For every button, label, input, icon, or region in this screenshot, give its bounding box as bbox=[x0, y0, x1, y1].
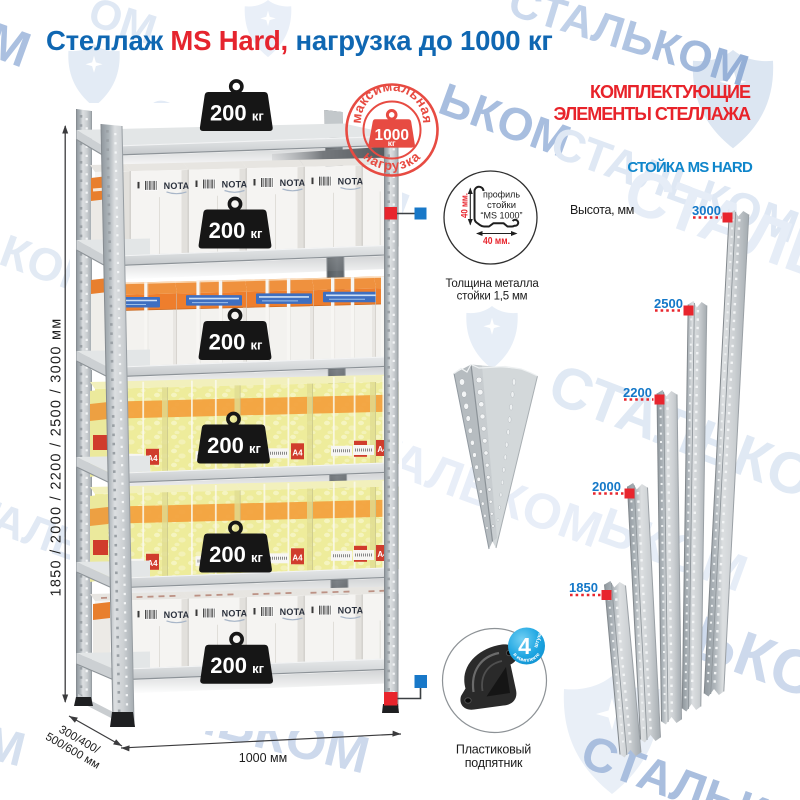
svg-text:A4: A4 bbox=[292, 448, 303, 457]
svg-text:“MS 1000”: “MS 1000” bbox=[481, 211, 523, 222]
svg-text:4: 4 bbox=[518, 633, 531, 659]
svg-text:кг: кг bbox=[251, 226, 264, 241]
svg-text:200: 200 bbox=[210, 653, 247, 678]
svg-text:2000: 2000 bbox=[592, 479, 621, 494]
svg-text:кг: кг bbox=[251, 338, 264, 353]
svg-text:200: 200 bbox=[209, 542, 246, 567]
svg-text:кг: кг bbox=[251, 550, 264, 565]
svg-text:NOTA: NOTA bbox=[164, 610, 190, 620]
svg-text:40 мм.: 40 мм. bbox=[460, 193, 471, 218]
svg-text:1000 мм: 1000 мм bbox=[239, 751, 287, 765]
svg-text:200: 200 bbox=[209, 330, 246, 355]
svg-text:NOTA: NOTA bbox=[280, 178, 306, 188]
svg-text:NOTA: NOTA bbox=[164, 181, 190, 191]
svg-text:Пластиковый: Пластиковый bbox=[456, 743, 531, 757]
svg-text:кг: кг bbox=[252, 661, 265, 676]
svg-text:NOTA: NOTA bbox=[222, 609, 248, 619]
svg-text:3000: 3000 bbox=[692, 203, 721, 218]
svg-text:NOTA: NOTA bbox=[338, 606, 364, 616]
svg-text:2200: 2200 bbox=[623, 385, 652, 400]
svg-text:стойки: стойки bbox=[487, 200, 516, 211]
svg-text:1850: 1850 bbox=[569, 580, 598, 595]
svg-text:кг: кг bbox=[249, 441, 262, 456]
svg-text:NOTA: NOTA bbox=[338, 177, 364, 187]
svg-text:Толщина металла: Толщина металла bbox=[445, 278, 539, 290]
svg-text:NOTA: NOTA bbox=[222, 180, 248, 190]
svg-text:200: 200 bbox=[209, 218, 246, 243]
svg-text:кг: кг bbox=[252, 109, 265, 124]
svg-text:1850 / 2000 / 2200 / 2500 / 30: 1850 / 2000 / 2200 / 2500 / 3000 мм bbox=[49, 317, 65, 596]
svg-text:стойки 1,5 мм: стойки 1,5 мм bbox=[457, 291, 528, 303]
svg-text:2500: 2500 bbox=[654, 296, 683, 311]
svg-text:подпятник: подпятник bbox=[465, 756, 523, 770]
svg-text:200: 200 bbox=[210, 101, 247, 126]
svg-text:профиль: профиль bbox=[483, 190, 520, 201]
svg-text:A4: A4 bbox=[292, 553, 303, 562]
svg-text:40 мм.: 40 мм. bbox=[483, 236, 510, 247]
svg-text:кг: кг bbox=[388, 138, 396, 148]
svg-text:NOTA: NOTA bbox=[280, 607, 306, 617]
svg-text:200: 200 bbox=[207, 433, 244, 458]
